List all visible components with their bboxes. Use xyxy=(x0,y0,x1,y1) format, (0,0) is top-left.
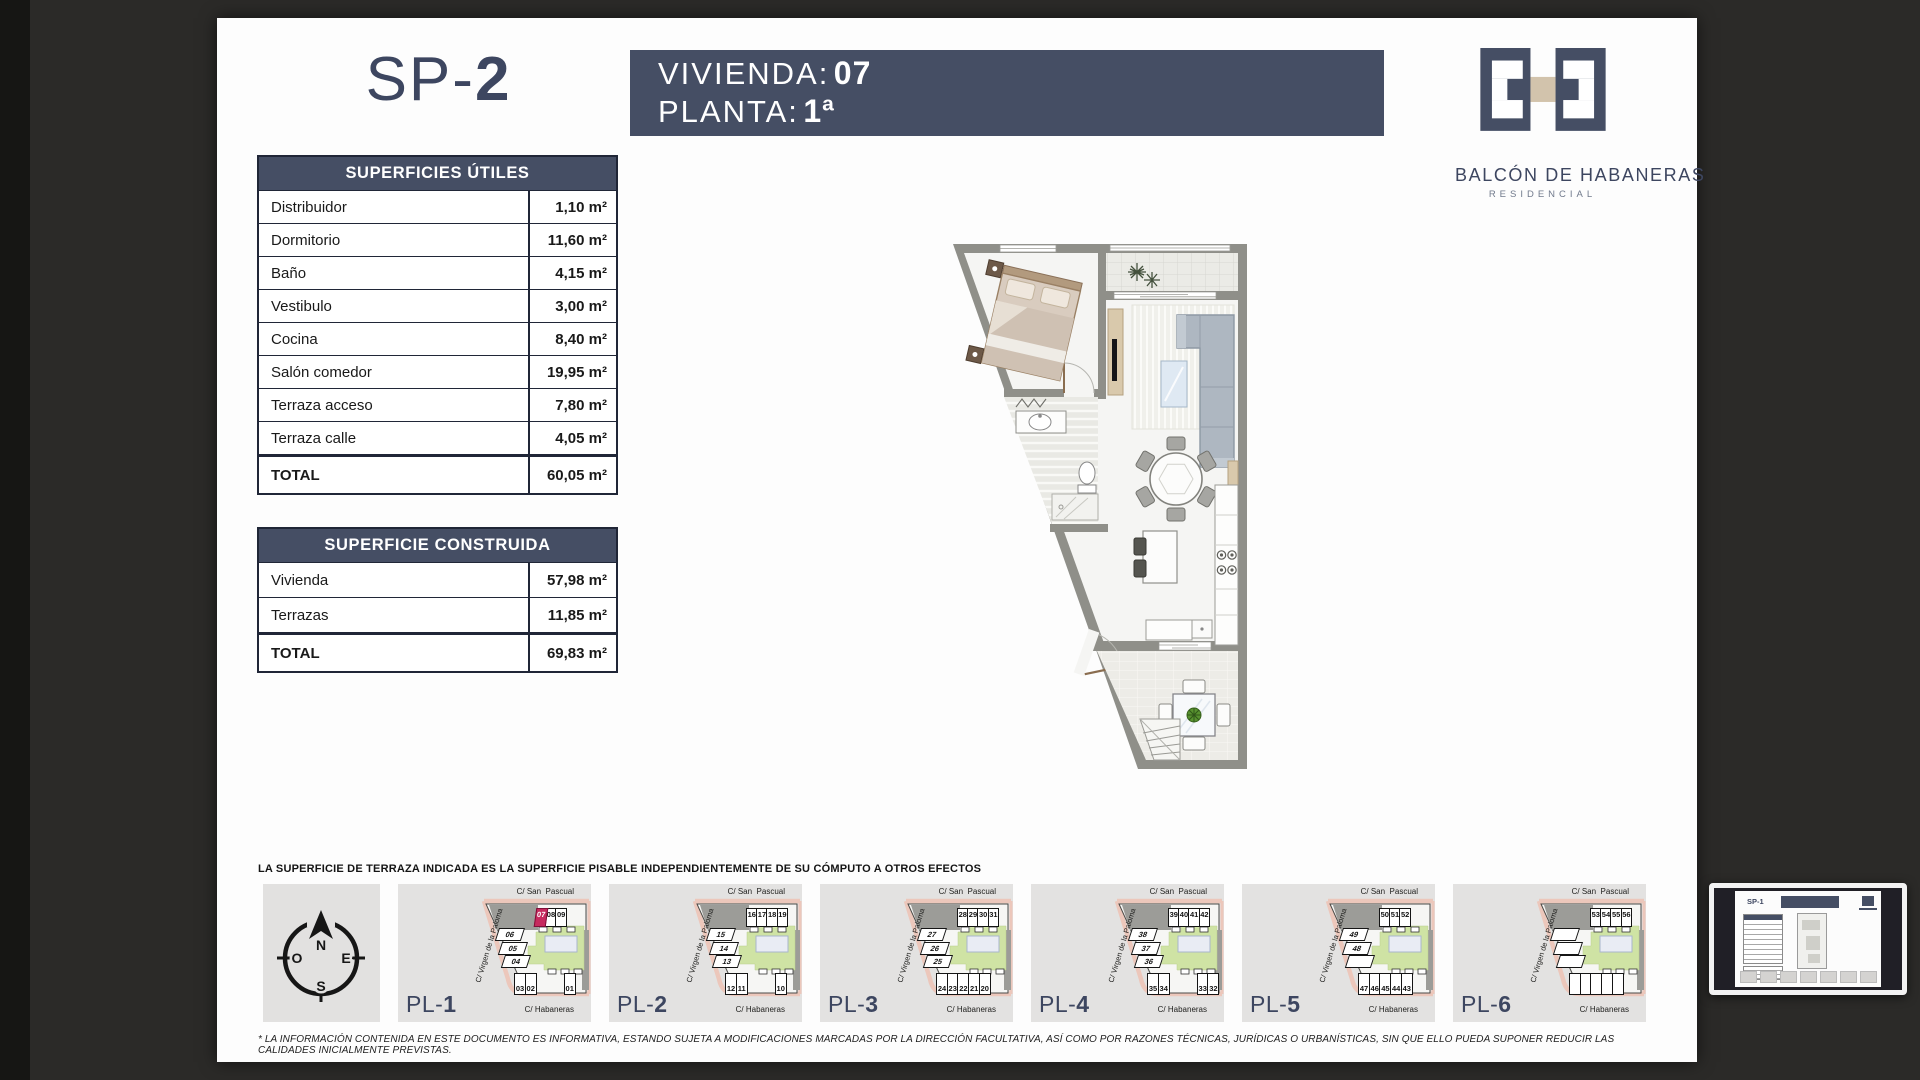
vivienda-value: 07 xyxy=(834,55,872,91)
sheet-code-number: 2 xyxy=(475,45,509,114)
island-chair xyxy=(1134,560,1146,577)
room-area: 7,80 m² xyxy=(528,389,616,421)
tv xyxy=(1112,339,1117,381)
unit-box: 34 xyxy=(1158,973,1170,995)
street-label-bottom: C/ Habaneras xyxy=(525,1005,574,1014)
unit-box: 05 xyxy=(498,942,528,955)
svg-text:E: E xyxy=(341,950,350,966)
row-label: Terrazas xyxy=(259,598,528,632)
room-label: Cocina xyxy=(259,323,528,355)
terrace-top-floor xyxy=(1106,253,1238,291)
thumbnail-logo xyxy=(1862,896,1874,906)
plan-label: PL-1 xyxy=(406,991,456,1018)
units-row-bottom: 35343332 xyxy=(1147,973,1219,995)
unit-box: 02 xyxy=(525,973,537,995)
logo-center-square xyxy=(1530,77,1555,102)
sheet-code: SP-2 xyxy=(257,44,618,115)
brand-name: BALCÓN DE HABANERAS xyxy=(1455,165,1630,186)
unit-box: 25 xyxy=(923,955,953,968)
room-area: 8,40 m² xyxy=(528,323,616,355)
unit-box: 15 xyxy=(706,928,736,941)
street-label-bottom: C/ Habaneras xyxy=(1580,1005,1629,1014)
plan-card-pl-2: C/ San Pascual C/ Virgen de la Paloma C/… xyxy=(609,884,802,1022)
street-label-bottom: C/ Habaneras xyxy=(736,1005,785,1014)
page-thumbnail[interactable]: SP-1 xyxy=(1709,883,1907,995)
room-area: 4,15 m² xyxy=(528,257,616,289)
unit-box: 13 xyxy=(712,955,742,968)
table-row: Terraza acceso 7,80 m² xyxy=(259,388,616,421)
brand-logo: BALCÓN DE HABANERAS RESIDENCIAL xyxy=(1455,48,1630,200)
thumbnail-strip xyxy=(1740,971,1877,983)
unit-box xyxy=(1550,928,1580,941)
room-area: 19,95 m² xyxy=(528,356,616,388)
unit-box: 26 xyxy=(920,942,950,955)
unit-box: 42 xyxy=(1199,908,1211,927)
svg-text:O: O xyxy=(292,950,303,966)
table-row: Distribuidor 1,10 m² xyxy=(259,190,616,223)
unit-box: 56 xyxy=(1621,908,1633,927)
table-row: Terrazas 11,85 m² xyxy=(259,597,616,632)
plan-card-pl-5: C/ San Pascual C/ Virgen de la Paloma C/… xyxy=(1242,884,1435,1022)
plan-label: PL-5 xyxy=(1250,991,1300,1018)
thumbnail-page-title: SP-1 xyxy=(1747,897,1764,906)
units-stack-diagonal: 151413 xyxy=(708,928,740,969)
unit-box: 36 xyxy=(1134,955,1164,968)
units-row-top: 39404142 xyxy=(1168,908,1210,927)
compass-card: N O E S xyxy=(263,884,380,1022)
unit-box: 10 xyxy=(775,973,787,995)
thumbnail-header-bar xyxy=(1781,896,1839,908)
plan-label: PL-3 xyxy=(828,991,878,1018)
thumbnail-mini-page: SP-1 xyxy=(1735,891,1881,987)
plan-label: PL-2 xyxy=(617,991,667,1018)
units-stack-diagonal: 4948 xyxy=(1341,928,1373,969)
row-area: 11,85 m² xyxy=(528,598,616,632)
planta-line: PLANTA: 1ª xyxy=(658,93,1384,131)
unit-box: 27 xyxy=(917,928,947,941)
room-area: 11,60 m² xyxy=(528,224,616,256)
plan-label: PL-4 xyxy=(1039,991,1089,1018)
unit-box xyxy=(1553,942,1583,955)
planta-value: 1ª xyxy=(803,93,835,129)
street-label-top: C/ San Pascual xyxy=(728,887,785,896)
legal-disclaimer: * LA INFORMACIÓN CONTENIDA EN ESTE DOCUM… xyxy=(258,1034,1671,1056)
thumbnail-floorplan xyxy=(1797,913,1827,969)
street-label-top: C/ San Pascual xyxy=(517,887,574,896)
unit-box: 01 xyxy=(564,973,576,995)
superficie-construida-table: SUPERFICIE CONSTRUIDA Vivienda 57,98 m² … xyxy=(257,527,618,673)
total-label: TOTAL xyxy=(259,635,528,671)
plan-sheet-page: SP-2 VIVIENDA: 07 PLANTA: 1ª xyxy=(217,18,1697,1062)
room-label: Dormitorio xyxy=(259,224,528,256)
floor-plan-drawing xyxy=(940,239,1250,779)
plan-card-pl-1: C/ San Pascual C/ Virgen de la Paloma C/… xyxy=(398,884,591,1022)
total-value: 60,05 m² xyxy=(528,457,616,493)
units-row-top: 505152 xyxy=(1379,908,1411,927)
table-row: Salón comedor 19,95 m² xyxy=(259,355,616,388)
units-row-bottom: 4746454443 xyxy=(1358,973,1413,995)
unit-box: 43 xyxy=(1401,973,1413,995)
units-stack-diagonal: 060504 xyxy=(497,928,529,969)
kitchen-counter xyxy=(1215,485,1238,645)
plans-strip: N O E S C/ San Pascual C/ Virgen de la P… xyxy=(263,884,1646,1022)
island-chair xyxy=(1134,538,1146,555)
vivienda-label: VIVIENDA: xyxy=(658,56,829,91)
street-label-top: C/ San Pascual xyxy=(939,887,996,896)
units-row-top: 53545556 xyxy=(1590,908,1632,927)
superficies-utiles-table: SUPERFICIES ÚTILES Distribuidor 1,10 m² … xyxy=(257,155,618,495)
table-row: Baño 4,15 m² xyxy=(259,256,616,289)
units-row-top: 28293031 xyxy=(957,908,999,927)
viewer-left-edge xyxy=(0,0,30,1080)
plan-card-pl-3: C/ San Pascual C/ Virgen de la Paloma C/… xyxy=(820,884,1013,1022)
table-row: Vestibulo 3,00 m² xyxy=(259,289,616,322)
plan-card-pl-6: C/ San Pascual C/ Virgen de la Paloma C/… xyxy=(1453,884,1646,1022)
table-row: Dormitorio 11,60 m² xyxy=(259,223,616,256)
brand-subtitle: RESIDENCIAL xyxy=(1455,189,1630,200)
unit-box: 32 xyxy=(1207,973,1219,995)
unit-box: 37 xyxy=(1131,942,1161,955)
room-label: Terraza acceso xyxy=(259,389,528,421)
total-value: 69,83 m² xyxy=(528,635,616,671)
unit-box xyxy=(1345,955,1375,968)
unit-box: 31 xyxy=(988,908,1000,927)
unit-box: 19 xyxy=(777,908,789,927)
units-row-top: 16171819 xyxy=(746,908,788,927)
street-label-bottom: C/ Habaneras xyxy=(1158,1005,1207,1014)
unit-box: 49 xyxy=(1339,928,1369,941)
vivienda-line: VIVIENDA: 07 xyxy=(658,55,1384,93)
units-stack-diagonal: 383736 xyxy=(1130,928,1162,969)
plan-card-pl-4: C/ San Pascual C/ Virgen de la Paloma C/… xyxy=(1031,884,1224,1022)
unit-box: 48 xyxy=(1342,942,1372,955)
row-area: 57,98 m² xyxy=(528,563,616,597)
svg-text:S: S xyxy=(316,978,325,994)
street-label-top: C/ San Pascual xyxy=(1572,887,1629,896)
units-row-bottom xyxy=(1569,973,1624,995)
unit-box: 04 xyxy=(501,955,531,968)
unit-box: 20 xyxy=(979,973,991,995)
table-body: Distribuidor 1,10 m² Dormitorio 11,60 m²… xyxy=(259,190,616,454)
table-body: Vivienda 57,98 m² Terrazas 11,85 m² xyxy=(259,562,616,632)
planta-label: PLANTA: xyxy=(658,94,799,129)
room-label: Baño xyxy=(259,257,528,289)
street-label-bottom: C/ Habaneras xyxy=(947,1005,996,1014)
table-row: Vivienda 57,98 m² xyxy=(259,562,616,597)
table-row: Cocina 8,40 m² xyxy=(259,322,616,355)
units-row-top: 070809 xyxy=(535,908,567,927)
row-label: Vivienda xyxy=(259,563,528,597)
unit-box: 06 xyxy=(495,928,525,941)
units-stack-diagonal xyxy=(1552,928,1584,969)
brand-logo-icon xyxy=(1479,48,1607,154)
shower xyxy=(1052,494,1098,520)
units-row-bottom: 121110 xyxy=(725,973,787,995)
units-row-bottom: 2423222120 xyxy=(936,973,991,995)
room-area: 1,10 m² xyxy=(528,191,616,223)
unit-box: 38 xyxy=(1128,928,1158,941)
street-label-top: C/ San Pascual xyxy=(1150,887,1207,896)
toilet xyxy=(1079,462,1095,484)
unit-box: 11 xyxy=(736,973,748,995)
terrace-note: LA SUPERFICIE DE TERRAZA INDICADA ES LA … xyxy=(258,863,981,875)
svg-text:N: N xyxy=(316,937,326,953)
unit-box: 14 xyxy=(709,942,739,955)
table-title: SUPERFICIES ÚTILES xyxy=(259,157,616,190)
unit-header-bar: VIVIENDA: 07 PLANTA: 1ª xyxy=(630,50,1384,136)
plan-label: PL-6 xyxy=(1461,991,1511,1018)
table-title: SUPERFICIE CONSTRUIDA xyxy=(259,529,616,562)
table-total-row: TOTAL 69,83 m² xyxy=(259,632,616,671)
thumbnail-table xyxy=(1743,914,1783,964)
unit-box xyxy=(1556,955,1586,968)
units-stack-diagonal: 272625 xyxy=(919,928,951,969)
table-row: Terraza calle 4,05 m² xyxy=(259,421,616,454)
total-label: TOTAL xyxy=(259,457,528,493)
street-label-top: C/ San Pascual xyxy=(1361,887,1418,896)
unit-box xyxy=(1612,973,1624,995)
room-label: Vestibulo xyxy=(259,290,528,322)
unit-box: 52 xyxy=(1399,908,1411,927)
sheet-code-prefix: SP- xyxy=(366,45,475,114)
room-label: Distribuidor xyxy=(259,191,528,223)
room-area: 4,05 m² xyxy=(528,422,616,454)
room-label: Salón comedor xyxy=(259,356,528,388)
compass-icon: N O E S xyxy=(263,884,380,1022)
room-label: Terraza calle xyxy=(259,422,528,454)
units-row-bottom: 030201 xyxy=(514,973,576,995)
unit-box: 09 xyxy=(555,908,567,927)
table-total-row: TOTAL 60,05 m² xyxy=(259,454,616,493)
street-label-bottom: C/ Habaneras xyxy=(1369,1005,1418,1014)
island-table xyxy=(1143,531,1177,583)
room-area: 3,00 m² xyxy=(528,290,616,322)
peninsula-counter xyxy=(1146,620,1192,640)
